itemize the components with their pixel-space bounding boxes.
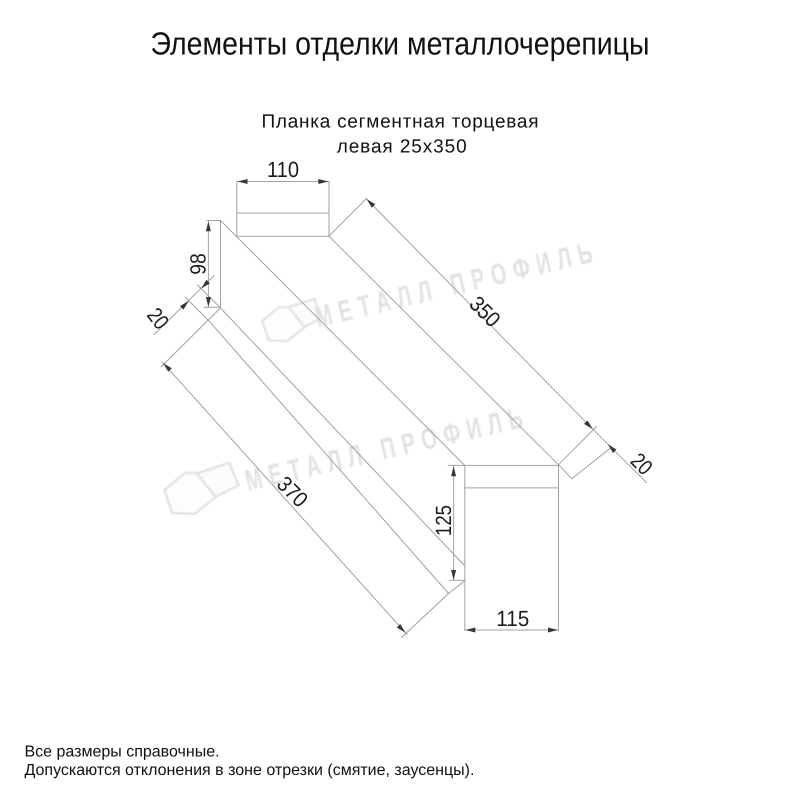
svg-text:Планка сегментная торцевая: Планка сегментная торцевая [262,112,539,133]
svg-text:125: 125 [431,505,456,536]
svg-text:Допускаются отклонения в зоне: Допускаются отклонения в зоне отрезки (с… [25,762,475,779]
svg-text:110: 110 [267,157,299,182]
svg-text:115: 115 [496,606,529,631]
svg-text:левая 25х350: левая 25х350 [337,137,467,158]
svg-text:Все размеры справочные.: Все размеры справочные. [25,744,220,761]
svg-text:98: 98 [186,253,211,275]
svg-text:Элементы отделки металлочерепи: Элементы отделки металлочерепицы [151,25,650,61]
